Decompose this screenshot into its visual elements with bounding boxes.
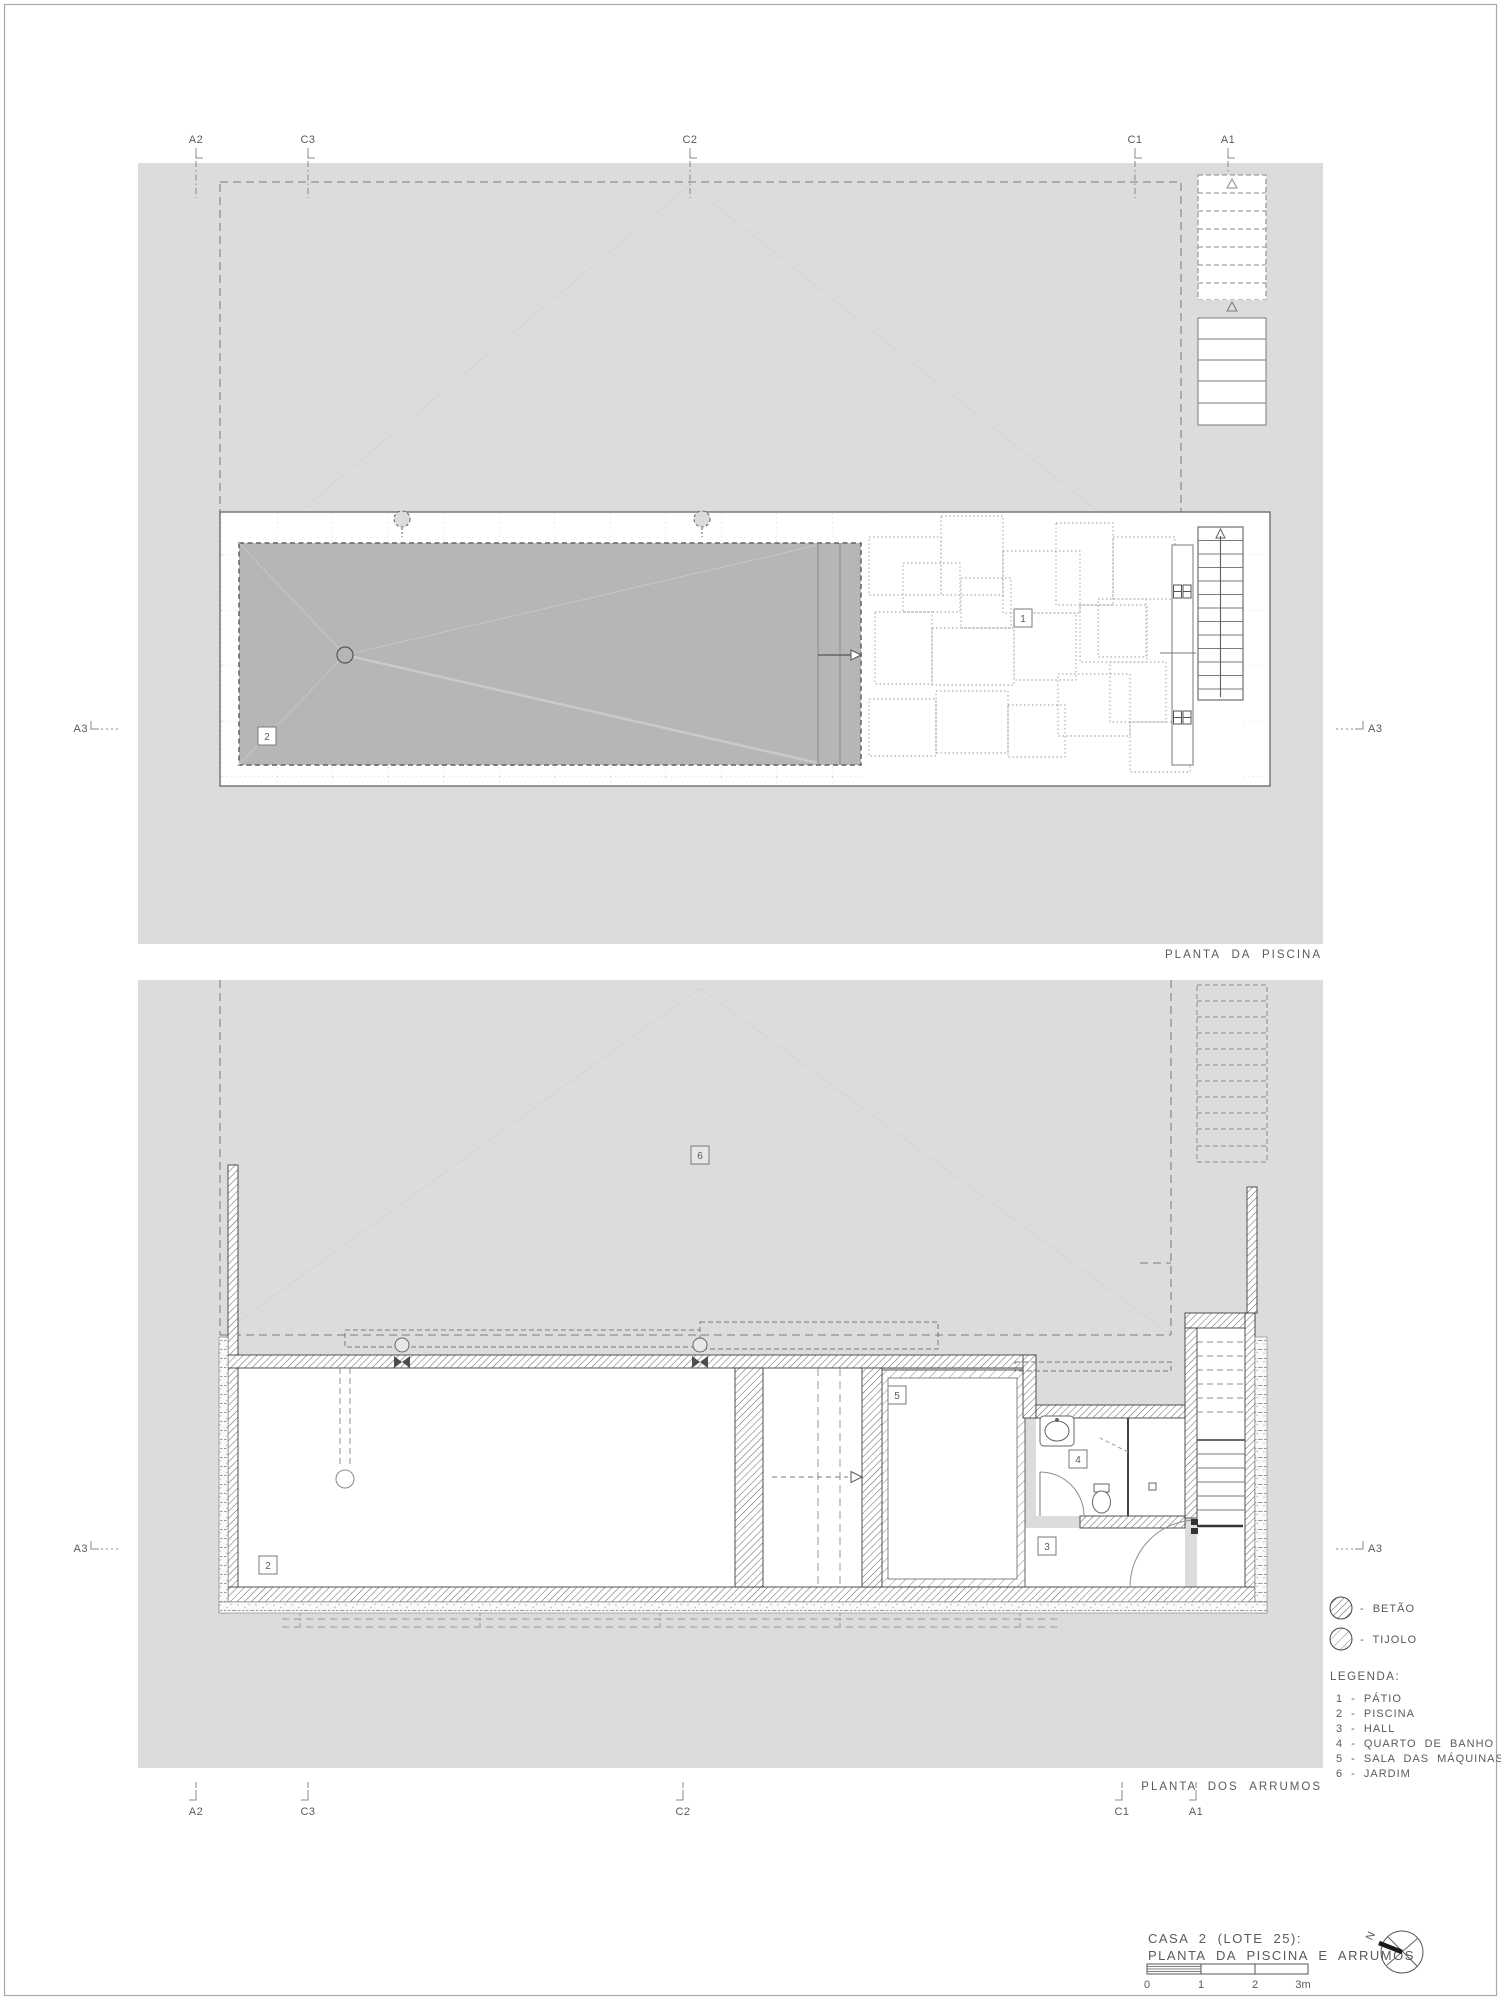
svg-text:C2: C2 xyxy=(682,134,697,146)
svg-text:A1: A1 xyxy=(1221,134,1235,146)
garden-wall-right xyxy=(1247,1187,1257,1313)
svg-text:C1: C1 xyxy=(1114,1806,1129,1818)
room-number: 1 xyxy=(1020,614,1026,625)
north-label: N xyxy=(1364,1930,1378,1942)
scale-bar: 0 1 2 3m xyxy=(1144,1964,1311,1991)
room-number: 2 xyxy=(264,732,270,743)
svg-text:A3: A3 xyxy=(1368,723,1382,735)
room-number: 4 xyxy=(1075,1455,1081,1466)
storage-room-2 xyxy=(238,1368,735,1587)
room-tag-maquinas: 5 xyxy=(888,1386,906,1404)
svg-text:A3: A3 xyxy=(1368,1543,1382,1555)
garden-stair-upper xyxy=(1198,175,1266,425)
svg-text:C3: C3 xyxy=(300,1806,315,1818)
pool-drain-icon xyxy=(337,647,353,663)
marker-c2-bottom: C2 xyxy=(675,1782,690,1818)
legend-item: 5 - SALA DAS MÁQUINAS xyxy=(1336,1752,1501,1765)
room-tag-patio: 1 xyxy=(1014,609,1032,627)
marker-a2-bottom: A2 xyxy=(189,1782,203,1818)
room-tag-piscina: 2 xyxy=(258,727,276,745)
legend-heading: LEGENDA: xyxy=(1330,1671,1400,1683)
room-number: 2 xyxy=(265,1561,271,1572)
floor-drain-icon xyxy=(1149,1483,1156,1490)
legend-item: 1 - PÁTIO xyxy=(1336,1692,1402,1705)
deck-stair xyxy=(1198,527,1243,700)
material-label: - TIJOLO xyxy=(1360,1634,1417,1646)
svg-text:A2: A2 xyxy=(189,134,203,146)
marker-a3-upper-right: A3 xyxy=(1336,721,1382,735)
marker-c1-bottom: C1 xyxy=(1114,1782,1129,1818)
upper-plan: 2 1 PLANTA DA PISCINA xyxy=(138,163,1323,961)
svg-text:A3: A3 xyxy=(74,1543,88,1555)
title-block: CASA 2 (LOTE 25): PLANTA DA PISCINA E AR… xyxy=(1144,1930,1423,1991)
scale-tick: 1 xyxy=(1198,1979,1204,1991)
legend-item: 6 - JARDIM xyxy=(1336,1768,1411,1780)
scale-tick: 0 xyxy=(1144,1979,1150,1991)
marker-a3-lower-right: A3 xyxy=(1336,1541,1382,1555)
svg-text:C3: C3 xyxy=(300,134,315,146)
room-number: 3 xyxy=(1044,1542,1050,1553)
room-number: 5 xyxy=(894,1391,900,1402)
svg-text:C2: C2 xyxy=(675,1806,690,1818)
drawing-sheet: 2 1 PLANTA DA PISCINA 6 xyxy=(0,0,1501,2000)
section-markers-bottom: A2 C3 C2 C1 A1 xyxy=(189,1782,1203,1818)
legend: - BETÃO - TIJOLO LEGENDA: 1 - PÁTIO 2 - … xyxy=(1330,1597,1501,1780)
toilet-icon xyxy=(1093,1491,1111,1513)
room-number: 6 xyxy=(697,1151,703,1162)
svg-text:A3: A3 xyxy=(74,723,88,735)
legend-item: 2 - PISCINA xyxy=(1336,1708,1415,1720)
stair-shaft xyxy=(1197,1328,1245,1587)
pool xyxy=(239,543,861,765)
room-tag-hall: 3 xyxy=(1038,1537,1056,1555)
tijolo-hatch-icon xyxy=(1330,1628,1352,1650)
marker-c3-bottom: C3 xyxy=(300,1782,315,1818)
washbasin-icon xyxy=(1045,1421,1069,1441)
scale-tick: 3m xyxy=(1295,1979,1310,1991)
marker-a3-lower-left: A3 xyxy=(74,1541,120,1555)
material-label: - BETÃO xyxy=(1360,1602,1415,1615)
betao-hatch-icon xyxy=(1330,1597,1352,1619)
room-tag-piscina-lower: 2 xyxy=(259,1556,277,1574)
lower-plan-title: PLANTA DOS ARRUMOS xyxy=(1141,1781,1322,1793)
sheet-title: PLANTA DA PISCINA E ARRUMOS xyxy=(1148,1948,1415,1963)
svg-text:C1: C1 xyxy=(1127,134,1142,146)
room-tag-banho: 4 xyxy=(1069,1450,1087,1468)
upper-plan-title: PLANTA DA PISCINA xyxy=(1165,949,1322,961)
scale-tick: 2 xyxy=(1252,1979,1258,1991)
svg-text:A1: A1 xyxy=(1189,1806,1203,1818)
svg-text:A2: A2 xyxy=(189,1806,203,1818)
legend-item: 4 - QUARTO DE BANHO xyxy=(1336,1738,1494,1750)
room-tag-jardim: 6 xyxy=(691,1146,709,1164)
legend-item: 3 - HALL xyxy=(1336,1723,1395,1735)
architectural-plan-canvas: 2 1 PLANTA DA PISCINA 6 xyxy=(0,0,1501,2000)
marker-a3-upper-left: A3 xyxy=(74,721,120,735)
lower-plan: 6 xyxy=(138,980,1323,1793)
project-title: CASA 2 (LOTE 25): xyxy=(1148,1931,1302,1946)
